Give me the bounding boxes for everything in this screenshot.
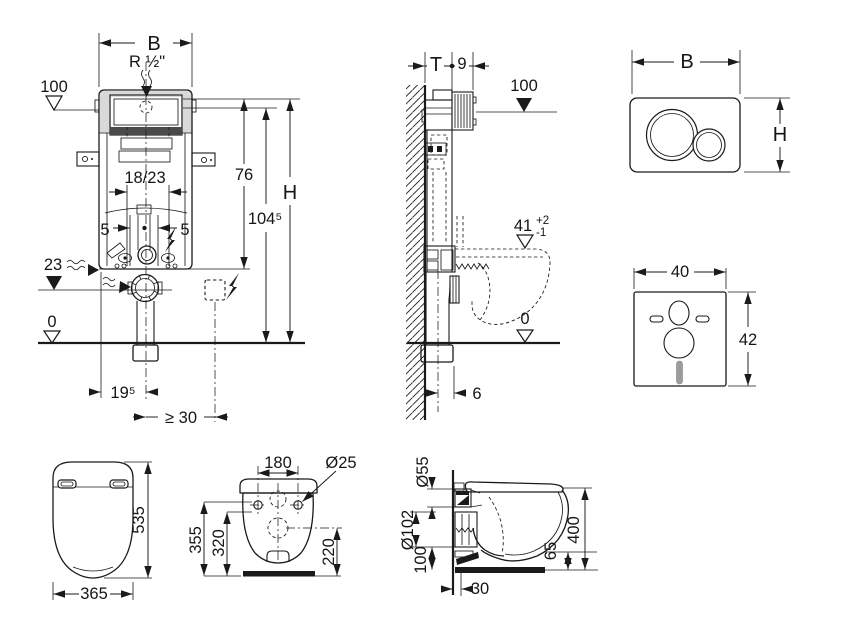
level-triangle-open-icon: [46, 96, 62, 110]
level-23-label: 23: [44, 256, 62, 274]
water-wave-icon: [103, 277, 115, 287]
dimension-outlet-dia: Ø102: [399, 510, 455, 550]
pan-height-label: 41: [514, 217, 532, 235]
dimension-outlet-offset: 6: [426, 366, 482, 403]
outlet-bend: [473, 528, 504, 556]
flush-button-small: [693, 129, 725, 161]
level-0-marker: 0: [44, 313, 60, 343]
seat-lid-side: [465, 482, 563, 492]
dim-365-label: 365: [80, 585, 108, 603]
level-0-marker: 0: [517, 310, 533, 342]
dim-40-label: 40: [671, 263, 689, 281]
figure-sound-insulation-mat: 40 42: [634, 263, 757, 386]
level-23-marker: 23: [38, 256, 172, 290]
dimension-320: 320: [210, 512, 252, 576]
level-0-label: 0: [520, 310, 529, 328]
figure-pan-top-view: 535 365: [53, 462, 152, 603]
drain-flange: [133, 345, 158, 361]
dimension-220: 220: [286, 528, 342, 576]
dimension-hole-dia: Ø25: [303, 454, 357, 502]
dim-h-label: H: [773, 124, 787, 146]
dimension-width-b: B: [632, 50, 740, 94]
level-0-label: 0: [47, 313, 56, 331]
dimension-height-400: 400: [562, 488, 592, 570]
flush-button-large: [647, 110, 698, 161]
dia-25-label: Ø25: [325, 454, 356, 472]
dim-b-label: B: [680, 51, 693, 73]
flow-arrow-icon: [119, 281, 131, 293]
dimension-width-40: 40: [634, 263, 726, 289]
dim-100-label: 100: [412, 546, 430, 574]
lever-mechanism: [107, 243, 125, 258]
dimension-height-42: 42: [728, 292, 757, 386]
tol-minus-label: -1: [536, 227, 546, 239]
dimension-wall-gap: 30: [441, 573, 489, 598]
lightning-bolt-icon: [165, 227, 176, 252]
flush-pipe-sleeve: [450, 276, 459, 303]
floor-bar: [455, 567, 545, 573]
outlet-offset-label: 6: [472, 385, 481, 403]
dim-t-label: T: [430, 54, 442, 76]
dim-9-label: 9: [457, 55, 466, 73]
dim-b-label: B: [147, 33, 160, 55]
electrical-connection-box: [205, 273, 239, 422]
dimension-offset-5: 5 5: [100, 221, 189, 239]
dimension-flush-dia: Ø55: [414, 456, 455, 518]
offset-5-right-label: 5: [180, 221, 189, 239]
dimension-depth-535: 535: [104, 462, 152, 578]
dim-535-label: 535: [130, 506, 148, 534]
offset-5-left-label: 5: [100, 221, 109, 239]
level-triangle-filled-icon: [516, 98, 532, 112]
service-opening: [121, 138, 172, 149]
dimension-180: 180: [258, 454, 298, 473]
min-clearance-label: ≥ 30: [165, 409, 197, 427]
rail-spacing-label: 18/23: [124, 169, 165, 187]
installation-drawing: 18/23 B R ½" 100 5: [0, 0, 853, 630]
floor-bar: [243, 571, 315, 577]
figure-frame-side-view: 100 41 +2 -1 0 6 T 9: [406, 52, 560, 420]
pan-height-marker: 41 +2 -1: [514, 215, 549, 248]
mounting-hardware: [455, 489, 482, 565]
dim-30-label: 30: [471, 580, 489, 598]
hidden-trap: [489, 497, 503, 553]
dim-42-label: 42: [739, 331, 757, 349]
dim-220-label: 220: [320, 538, 338, 566]
dimension-width-365: 365: [53, 582, 133, 603]
level-triangle-filled-icon: [46, 276, 62, 290]
level-triangle-open-icon: [44, 331, 60, 343]
figure-pan-rear-view: 180 Ø25 355 320 220: [187, 454, 357, 577]
dimension-outlet-height: 100: [412, 546, 432, 574]
electrical-box: [205, 280, 225, 300]
flow-arrow-icon: [88, 264, 99, 276]
dim-180-label: 180: [264, 454, 292, 472]
dimension-rim-clearance: 65: [542, 542, 597, 570]
threaded-rod: [456, 528, 474, 532]
dimension-height-h: H: [744, 98, 790, 172]
dimension-depth: T 9: [408, 52, 489, 90]
dia-102-label: Ø102: [399, 510, 417, 550]
dim-104-label: 104⁵: [248, 210, 282, 228]
outlet-offset-label: 19⁵: [110, 384, 135, 402]
dim-h-label: H: [283, 182, 297, 204]
level-triangle-open-icon: [517, 235, 533, 248]
wall-hatching: [406, 85, 424, 420]
water-wave-icon: [142, 70, 152, 86]
dim-76-label: 76: [235, 166, 253, 184]
level-100-label: 100: [510, 77, 538, 95]
drain-assembly: [128, 62, 162, 400]
inlet-label: R ½": [129, 53, 165, 71]
dim-65-label: 65: [542, 542, 560, 560]
figure-flush-plate: B H: [630, 50, 790, 172]
figure-frame-front-view: 18/23 B R ½" 100 5: [38, 33, 305, 427]
dim-355-label: 355: [187, 526, 205, 554]
level-triangle-open-icon: [517, 330, 533, 342]
flush-pipe-cutout: [669, 301, 689, 325]
dim-400-label: 400: [565, 516, 583, 544]
tol-plus-label: +2: [536, 215, 549, 227]
level-100-marker: 100: [40, 78, 99, 110]
level-100-label: 100: [40, 78, 68, 96]
bolt-slot-right: [696, 316, 709, 322]
outlet-cutout: [664, 328, 694, 358]
water-wave-icon: [67, 260, 85, 270]
technical-drawing-canvas: 18/23 B R ½" 100 5: [0, 0, 853, 630]
bolt-slot-left: [650, 316, 663, 322]
bottom-slot: [677, 361, 683, 384]
flush-bend: [138, 246, 156, 264]
dim-320-label: 320: [210, 529, 228, 557]
hole-centerlines: [250, 466, 306, 560]
lightning-bolt-icon: [226, 273, 239, 300]
dia-55-label: Ø55: [414, 456, 432, 487]
frame-profile: [421, 90, 476, 412]
level-100-marker: 100: [476, 77, 557, 112]
figure-pan-side-view: Ø55 Ø102 100 65 400 30: [399, 456, 598, 598]
rail-spacing-dimension: 18/23: [109, 169, 187, 266]
